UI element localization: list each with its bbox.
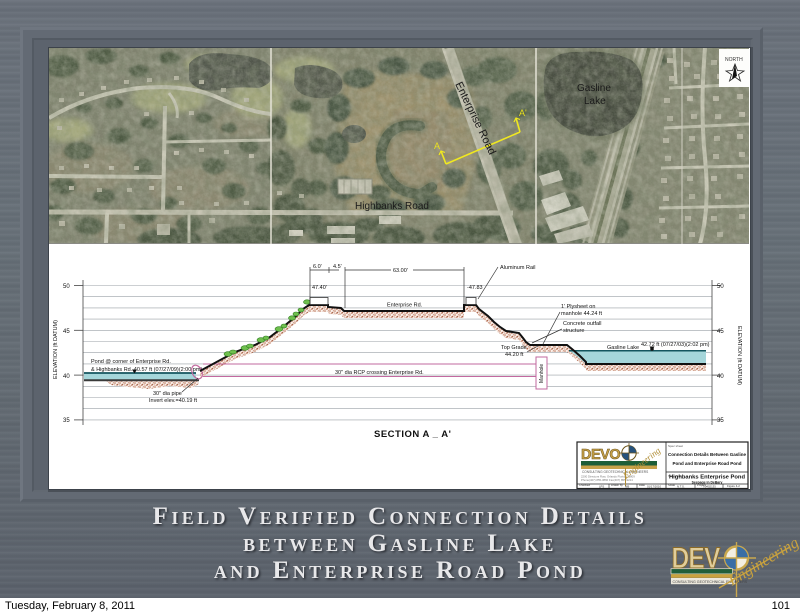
svg-text:44.20 ft: 44.20 ft <box>505 352 524 358</box>
svg-text:ELEVATION (ft DATUM): ELEVATION (ft DATUM) <box>736 326 742 385</box>
svg-text:1' Plysheet on: 1' Plysheet on <box>561 304 595 310</box>
svg-text:Gasline Lake: Gasline Lake <box>607 345 639 351</box>
svg-text:Connection Details Between Gas: Connection Details Between Gasline <box>668 452 747 457</box>
svg-text:30" dia pipe: 30" dia pipe <box>153 391 182 397</box>
svg-text:DEVO: DEVO <box>581 447 620 463</box>
svg-text:Enterprise Rd.: Enterprise Rd. <box>387 303 423 309</box>
svg-text:structure: structure <box>563 328 584 334</box>
svg-text:4.5': 4.5' <box>333 264 342 270</box>
svg-text:Spec sheet: Spec sheet <box>668 444 683 448</box>
svg-text:Manhole: Manhole <box>539 364 545 383</box>
svg-text:manhole 44.24 ft: manhole 44.24 ft <box>561 311 602 317</box>
svg-text:Gasline: Gasline <box>577 83 611 94</box>
svg-text:Concrete outfall: Concrete outfall <box>563 321 602 327</box>
svg-text:Aluminum Rail: Aluminum Rail <box>500 265 535 271</box>
svg-text:Highbanks Road: Highbanks Road <box>355 201 429 212</box>
svg-text:V0402135: V0402135 <box>703 485 716 489</box>
svg-text:6.0': 6.0' <box>313 264 322 270</box>
svg-text:01/17/2010: 01/17/2010 <box>647 485 661 489</box>
svg-text:Drawn by: Drawn by <box>611 483 623 487</box>
svg-text:N.T.S.: N.T.S. <box>677 485 685 489</box>
svg-text:SECTION A _ A': SECTION A _ A' <box>374 429 451 440</box>
svg-text:Top Grade: Top Grade <box>501 345 527 351</box>
svg-text:Checked: Checked <box>579 483 590 487</box>
svg-text:50: 50 <box>63 284 70 290</box>
svg-text:Highbanks Enterprise Pond: Highbanks Enterprise Pond <box>669 475 745 481</box>
svg-text:63.00': 63.00' <box>393 268 408 274</box>
svg-text:Pond and Enterprise Road Pond: Pond and Enterprise Road Pond <box>672 461 741 466</box>
svg-text:Invert elev.=40.19 ft: Invert elev.=40.19 ft <box>149 398 198 404</box>
svg-text:35: 35 <box>63 418 70 424</box>
svg-text:50: 50 <box>717 284 724 290</box>
svg-text:35: 35 <box>717 418 724 424</box>
svg-text:LPS: LPS <box>599 485 604 489</box>
svg-text:A': A' <box>519 108 527 118</box>
svg-text:& Highbanks Rd. 40.57 ft (07/: & Highbanks Rd. 40.57 ft (07/27/09)(2:00… <box>91 367 202 373</box>
svg-text:-47.83: -47.83 <box>467 285 483 291</box>
svg-text:Figure 4-2: Figure 4-2 <box>727 484 740 488</box>
svg-text:47.40': 47.40' <box>312 285 327 291</box>
svg-text:45: 45 <box>63 329 70 335</box>
svg-text:Scale: Scale <box>668 483 675 487</box>
svg-text:ELEVATION (ft DATUM): ELEVATION (ft DATUM) <box>53 320 59 379</box>
svg-text:NORTH: NORTH <box>725 57 743 63</box>
svg-text:40: 40 <box>63 374 70 380</box>
svg-text:Pond @ corner of Enterprise Rd: Pond @ corner of Enterprise Rd. <box>91 359 171 365</box>
svg-text:Lake: Lake <box>584 96 606 107</box>
svg-text:40: 40 <box>717 374 724 380</box>
svg-text:A: A <box>434 141 440 151</box>
svg-text:30" dia RCP crossing Enterpris: 30" dia RCP crossing Enterprise Rd. <box>335 370 424 376</box>
svg-text:45: 45 <box>717 329 724 335</box>
svg-text:Date: Date <box>639 483 645 487</box>
svg-text:MB: MB <box>625 485 629 489</box>
